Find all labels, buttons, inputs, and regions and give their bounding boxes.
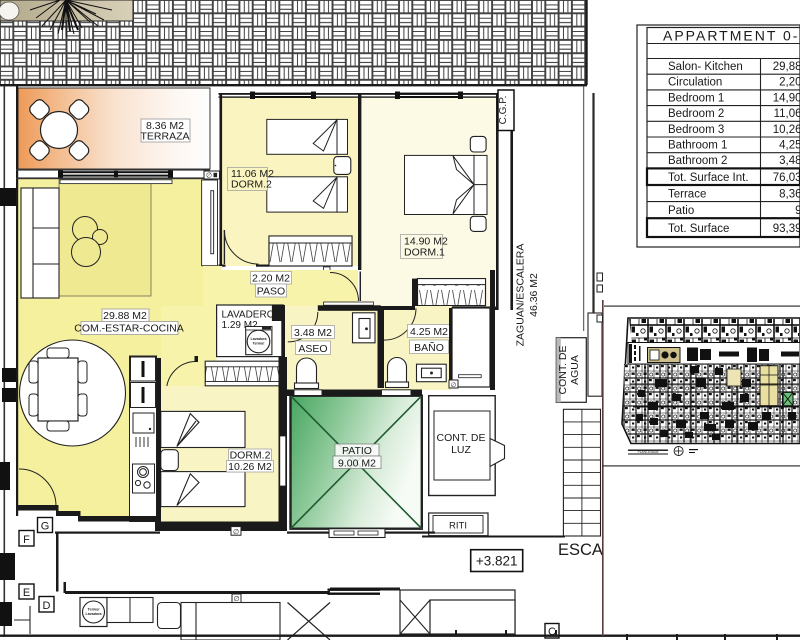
svg-text:2,20: 2,20 — [779, 77, 800, 89]
svg-text:TERRAZA: TERRAZA — [140, 131, 189, 143]
svg-text:3,48: 3,48 — [779, 155, 800, 167]
svg-text:11,06: 11,06 — [774, 108, 800, 120]
svg-text:RITI: RITI — [449, 521, 467, 532]
svg-text:4.25 M2: 4.25 M2 — [410, 326, 448, 338]
svg-text:DORM.2: DORM.2 — [231, 179, 272, 191]
svg-text:F: F — [23, 534, 30, 546]
svg-text:9: 9 — [795, 205, 800, 217]
svg-text:LAVADERO: LAVADERO — [222, 310, 275, 321]
svg-text:8,36: 8,36 — [779, 188, 800, 200]
svg-text:ASEO: ASEO — [298, 343, 327, 355]
svg-text:Lavadora: Lavadora — [86, 612, 103, 616]
svg-text:Tot. Surface Int.: Tot. Surface Int. — [668, 172, 749, 184]
svg-text:ZAGUAN/ESCALERA: ZAGUAN/ESCALERA — [515, 244, 527, 347]
svg-text:PATIO: PATIO — [342, 445, 372, 457]
svg-text:10,26: 10,26 — [773, 124, 800, 136]
svg-text:Circulation: Circulation — [668, 77, 722, 89]
svg-text:10.26 M2: 10.26 M2 — [228, 461, 272, 473]
svg-text:G: G — [41, 521, 50, 533]
svg-text:Termo/: Termo/ — [88, 608, 100, 612]
svg-text:14,90: 14,90 — [773, 92, 800, 104]
svg-text:∅: ∅ — [451, 382, 457, 389]
svg-text:∅: ∅ — [233, 529, 239, 536]
svg-text:CONT. DE: CONT. DE — [557, 345, 569, 394]
svg-text:9.00 M2: 9.00 M2 — [338, 458, 376, 470]
svg-text:ESCA: ESCA — [558, 541, 603, 559]
svg-text:Termo!: Termo! — [253, 342, 265, 346]
svg-text:APPARTMENT 0-: APPARTMENT 0- — [663, 28, 799, 44]
svg-text:3.48 M2: 3.48 M2 — [294, 327, 332, 339]
svg-text:2.20 M2: 2.20 M2 — [252, 273, 290, 285]
svg-text:Bedroom 3: Bedroom 3 — [668, 124, 724, 136]
svg-text:Lavadora: Lavadora — [251, 337, 268, 341]
svg-text:DORM.2: DORM.2 — [230, 450, 271, 462]
svg-text:29,88: 29,88 — [773, 61, 800, 73]
svg-text:BAÑO: BAÑO — [414, 341, 444, 354]
svg-text:AGUA: AGUA — [569, 355, 581, 385]
svg-text:Salon- Kitchen: Salon- Kitchen — [668, 61, 743, 73]
svg-text:∅: ∅ — [206, 173, 212, 180]
svg-text:E: E — [23, 587, 30, 599]
svg-text:Bedroom 1: Bedroom 1 — [668, 92, 724, 104]
svg-text:Tot. Surface: Tot. Surface — [668, 223, 729, 235]
svg-text:Terrace: Terrace — [668, 188, 706, 200]
svg-text:29.88 M2: 29.88 M2 — [103, 310, 147, 322]
svg-text:Bedroom 2: Bedroom 2 — [668, 108, 724, 120]
svg-text:+3.821: +3.821 — [476, 554, 518, 569]
svg-text:93,39: 93,39 — [773, 223, 800, 235]
svg-text:Bathroom 1: Bathroom 1 — [668, 140, 727, 152]
svg-text:D: D — [43, 600, 51, 612]
svg-text:46.36 M2: 46.36 M2 — [528, 273, 540, 317]
svg-text:DORM.1: DORM.1 — [404, 247, 445, 259]
svg-text:Patio: Patio — [668, 205, 694, 217]
svg-text:4,25: 4,25 — [779, 140, 800, 152]
svg-text:PLANTA BAJA: PLANTA BAJA — [638, 450, 660, 454]
svg-text:PASO: PASO — [257, 286, 285, 298]
svg-text:COM.-ESTAR-COCINA: COM.-ESTAR-COCINA — [74, 323, 183, 335]
svg-text:Bathroom 2: Bathroom 2 — [668, 155, 727, 167]
svg-text:LUZ: LUZ — [451, 444, 471, 456]
svg-text:76,03: 76,03 — [773, 172, 800, 184]
svg-text:C.G.P.: C.G.P. — [498, 96, 509, 125]
svg-text:CONT. DE: CONT. DE — [436, 432, 485, 444]
